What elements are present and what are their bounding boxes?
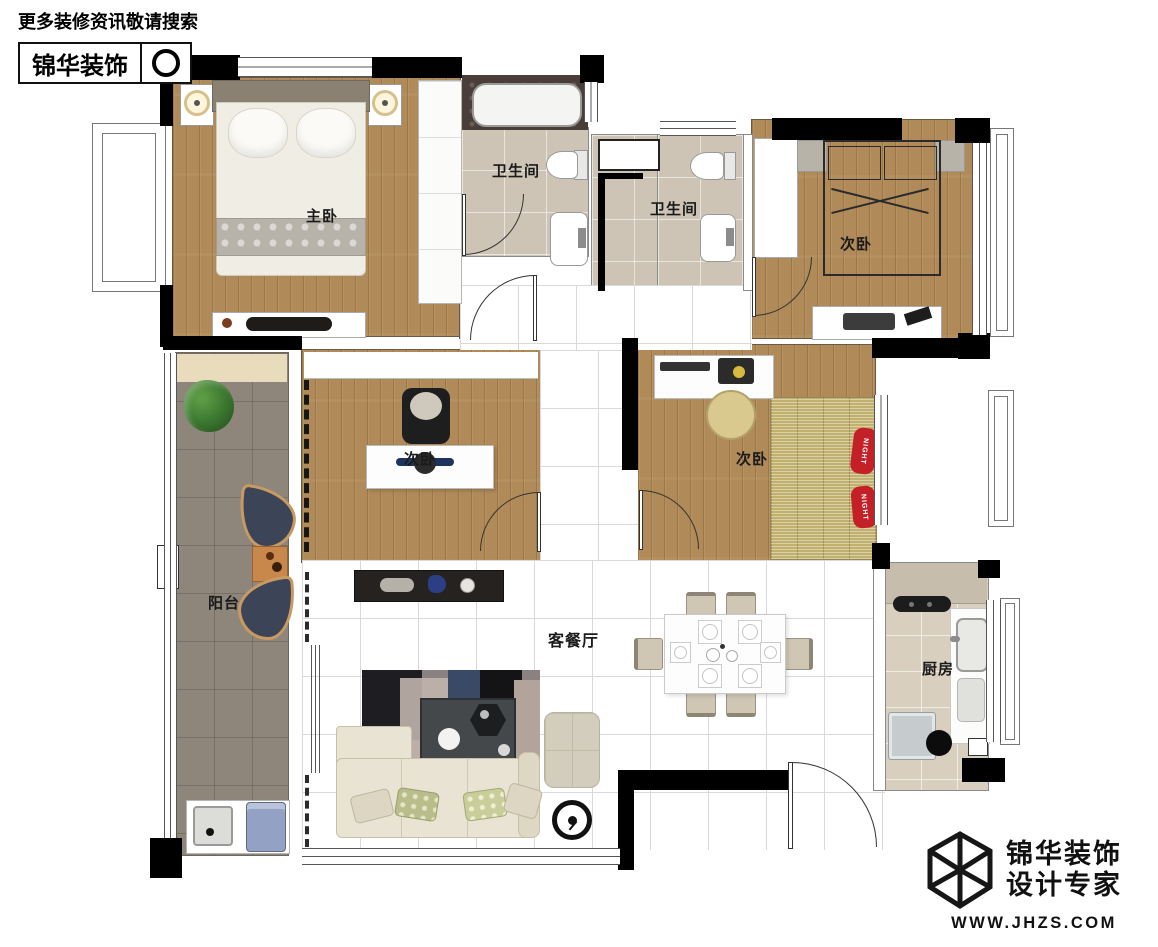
wall-top-3: [580, 55, 604, 83]
kitchen-trash-bin: [926, 730, 952, 756]
sink-1-basin: [578, 228, 586, 248]
dining-plate-right: [760, 642, 781, 663]
laundry-faucet: [206, 828, 214, 836]
wall-left-1: [160, 78, 173, 126]
side-table: [544, 712, 600, 788]
footer-subtitle: 设计专家: [1006, 870, 1122, 901]
footer-branding: 锦华装饰 设计专家 WWW.JHZS.COM: [924, 830, 1144, 933]
balcony-threshold: [177, 354, 287, 382]
footer-brand: 锦华装饰: [1006, 839, 1122, 870]
shower-cabinet: [598, 139, 660, 171]
footer-website: WWW.JHZS.COM: [924, 914, 1144, 933]
coffee-table: [420, 698, 516, 766]
door-leaf-study: [537, 492, 541, 552]
lamp-left: [184, 90, 210, 116]
wall-shower-h: [598, 173, 643, 179]
brand-logo-icon: [924, 830, 996, 910]
kitchen-faucet: [950, 636, 960, 642]
laundry-sink: [193, 806, 233, 846]
brand-name: 锦华装饰: [20, 44, 142, 82]
study-closet-strip: [304, 380, 309, 552]
bay-window-tatami: [988, 390, 1014, 527]
pillow-text: NIGHT: [859, 437, 869, 464]
wall-master-bottom: [163, 336, 302, 350]
label-bathroom-1: 卫生间: [492, 160, 540, 181]
search-icon-cell: [142, 44, 190, 82]
tv-decor-skeleton: [380, 578, 414, 592]
dining-chair-right: [784, 638, 813, 670]
bay-window-master: [92, 123, 166, 292]
master-wardrobe: [418, 80, 462, 304]
bay-window-kitchen: [1000, 598, 1020, 745]
curtain-mark-bottom: [305, 775, 309, 847]
label-bedroom-top-right: 次卧: [840, 233, 872, 254]
master-tv: [246, 317, 332, 331]
wall-tatami-left: [622, 338, 638, 470]
door-leaf-bedroom-tr: [752, 257, 756, 317]
label-bedroom-study: 次卧: [404, 448, 436, 469]
study-chair-cushion: [410, 392, 442, 420]
label-kitchen: 厨房: [922, 658, 954, 679]
coffee-table-tray: [470, 704, 506, 736]
tatami-desk-shelf: [660, 362, 710, 371]
tr-wardrobe: [754, 138, 798, 258]
dining-plate-left: [670, 642, 691, 663]
wall-kitchen-br: [962, 758, 1005, 782]
tatami-mat: [770, 397, 877, 560]
tatami-desk-bowl: [733, 366, 745, 378]
master-pillow-left: [228, 108, 288, 158]
coffee-table-plate-1: [438, 728, 460, 750]
toilet-1-bowl: [546, 151, 578, 179]
floor-fan: [552, 800, 592, 840]
dining-plate-2: [738, 620, 762, 644]
sink-2-basin: [726, 228, 734, 246]
tatami-chair: [706, 390, 756, 440]
cooktop-burner-2: [927, 602, 932, 607]
dining-plate-4: [738, 664, 762, 688]
window-master-top: [238, 57, 372, 77]
master-decor-dots: [222, 318, 232, 328]
curtain-mark-top: [305, 572, 309, 642]
window-bedroom-tr-right: [972, 143, 987, 335]
balcony-table-cup-1: [266, 552, 274, 560]
label-bathroom-2: 卫生间: [650, 198, 698, 219]
wall-living-kitchen: [874, 560, 885, 790]
sofa-pillow-3: [462, 787, 508, 822]
wall-top-2: [372, 57, 462, 78]
dining-center-bowl-2: [726, 650, 738, 662]
door-leaf-entry: [788, 762, 793, 849]
kitchen-board: [957, 678, 985, 722]
kitchen-sink: [956, 618, 988, 672]
toilet-2-tank: [724, 152, 736, 180]
window-tatami-right: [874, 395, 888, 525]
search-icon: [152, 49, 180, 77]
wall-bath2-bedroom: [744, 135, 752, 290]
brand-search-box: 锦华装饰: [18, 42, 192, 84]
wall-kitchen-tr: [978, 560, 1000, 578]
tv-decor-plant: [428, 575, 446, 593]
coffee-table-plate-3: [480, 710, 489, 719]
lamp-right: [372, 90, 398, 116]
study-top-cabinet: [304, 352, 538, 379]
dining-plate-1: [698, 620, 722, 644]
dining-center-dot: [720, 644, 725, 649]
balcony-table-cup-2: [272, 562, 282, 572]
window-hall-corner: [584, 82, 598, 122]
pillow-text: NIGHT: [859, 493, 868, 520]
window-balcony-left: [164, 353, 177, 838]
window-kitchen-right: [986, 600, 1001, 742]
master-blanket: [216, 218, 366, 256]
kitchen-bottom-box: [968, 738, 988, 756]
door-leaf-master: [533, 275, 537, 341]
label-living-dining: 客餐厅: [548, 627, 599, 651]
window-living-bottom: [302, 848, 620, 865]
wall-shower-v: [598, 173, 605, 291]
tr-laptop: [843, 313, 895, 330]
wall-corner-bl: [150, 838, 182, 878]
wall-top-4: [772, 118, 902, 140]
wall-mid-right: [872, 338, 990, 358]
wall-bottom-h: [618, 770, 792, 790]
coffee-table-plate-2: [498, 744, 510, 756]
dining-plate-3: [698, 664, 722, 688]
floor-plan-page: 更多装修资讯敬请搜索 锦华装饰: [0, 0, 1158, 947]
tr-pillow-left: [828, 146, 881, 180]
search-tagline: 更多装修资讯敬请搜索: [18, 8, 198, 34]
window-hall-top: [660, 121, 736, 136]
bathtub: [472, 83, 582, 127]
balcony-sliding-door: [311, 645, 320, 773]
door-leaf-bathroom-1: [462, 194, 466, 256]
label-master-bedroom: 主卧: [306, 205, 338, 226]
dining-center-bowl-1: [706, 648, 720, 662]
cooktop-burner-1: [909, 602, 914, 607]
washing-machine: [246, 802, 286, 852]
label-balcony: 阳台: [208, 592, 240, 613]
master-pillow-right: [296, 108, 356, 158]
wall-tatami-br: [872, 543, 890, 569]
tv-decor-ball: [460, 578, 475, 593]
dining-chair-left: [634, 638, 663, 670]
door-leaf-tatami: [639, 490, 643, 550]
label-bedroom-tatami: 次卧: [736, 448, 768, 469]
toilet-2-bowl: [690, 152, 724, 180]
bay-window-bedroom-tr: [990, 128, 1014, 337]
balcony-plant: [184, 380, 234, 432]
tr-pillow-right: [884, 146, 937, 180]
wall-corner-tr: [955, 118, 990, 143]
kitchen-cooktop: [893, 596, 951, 612]
